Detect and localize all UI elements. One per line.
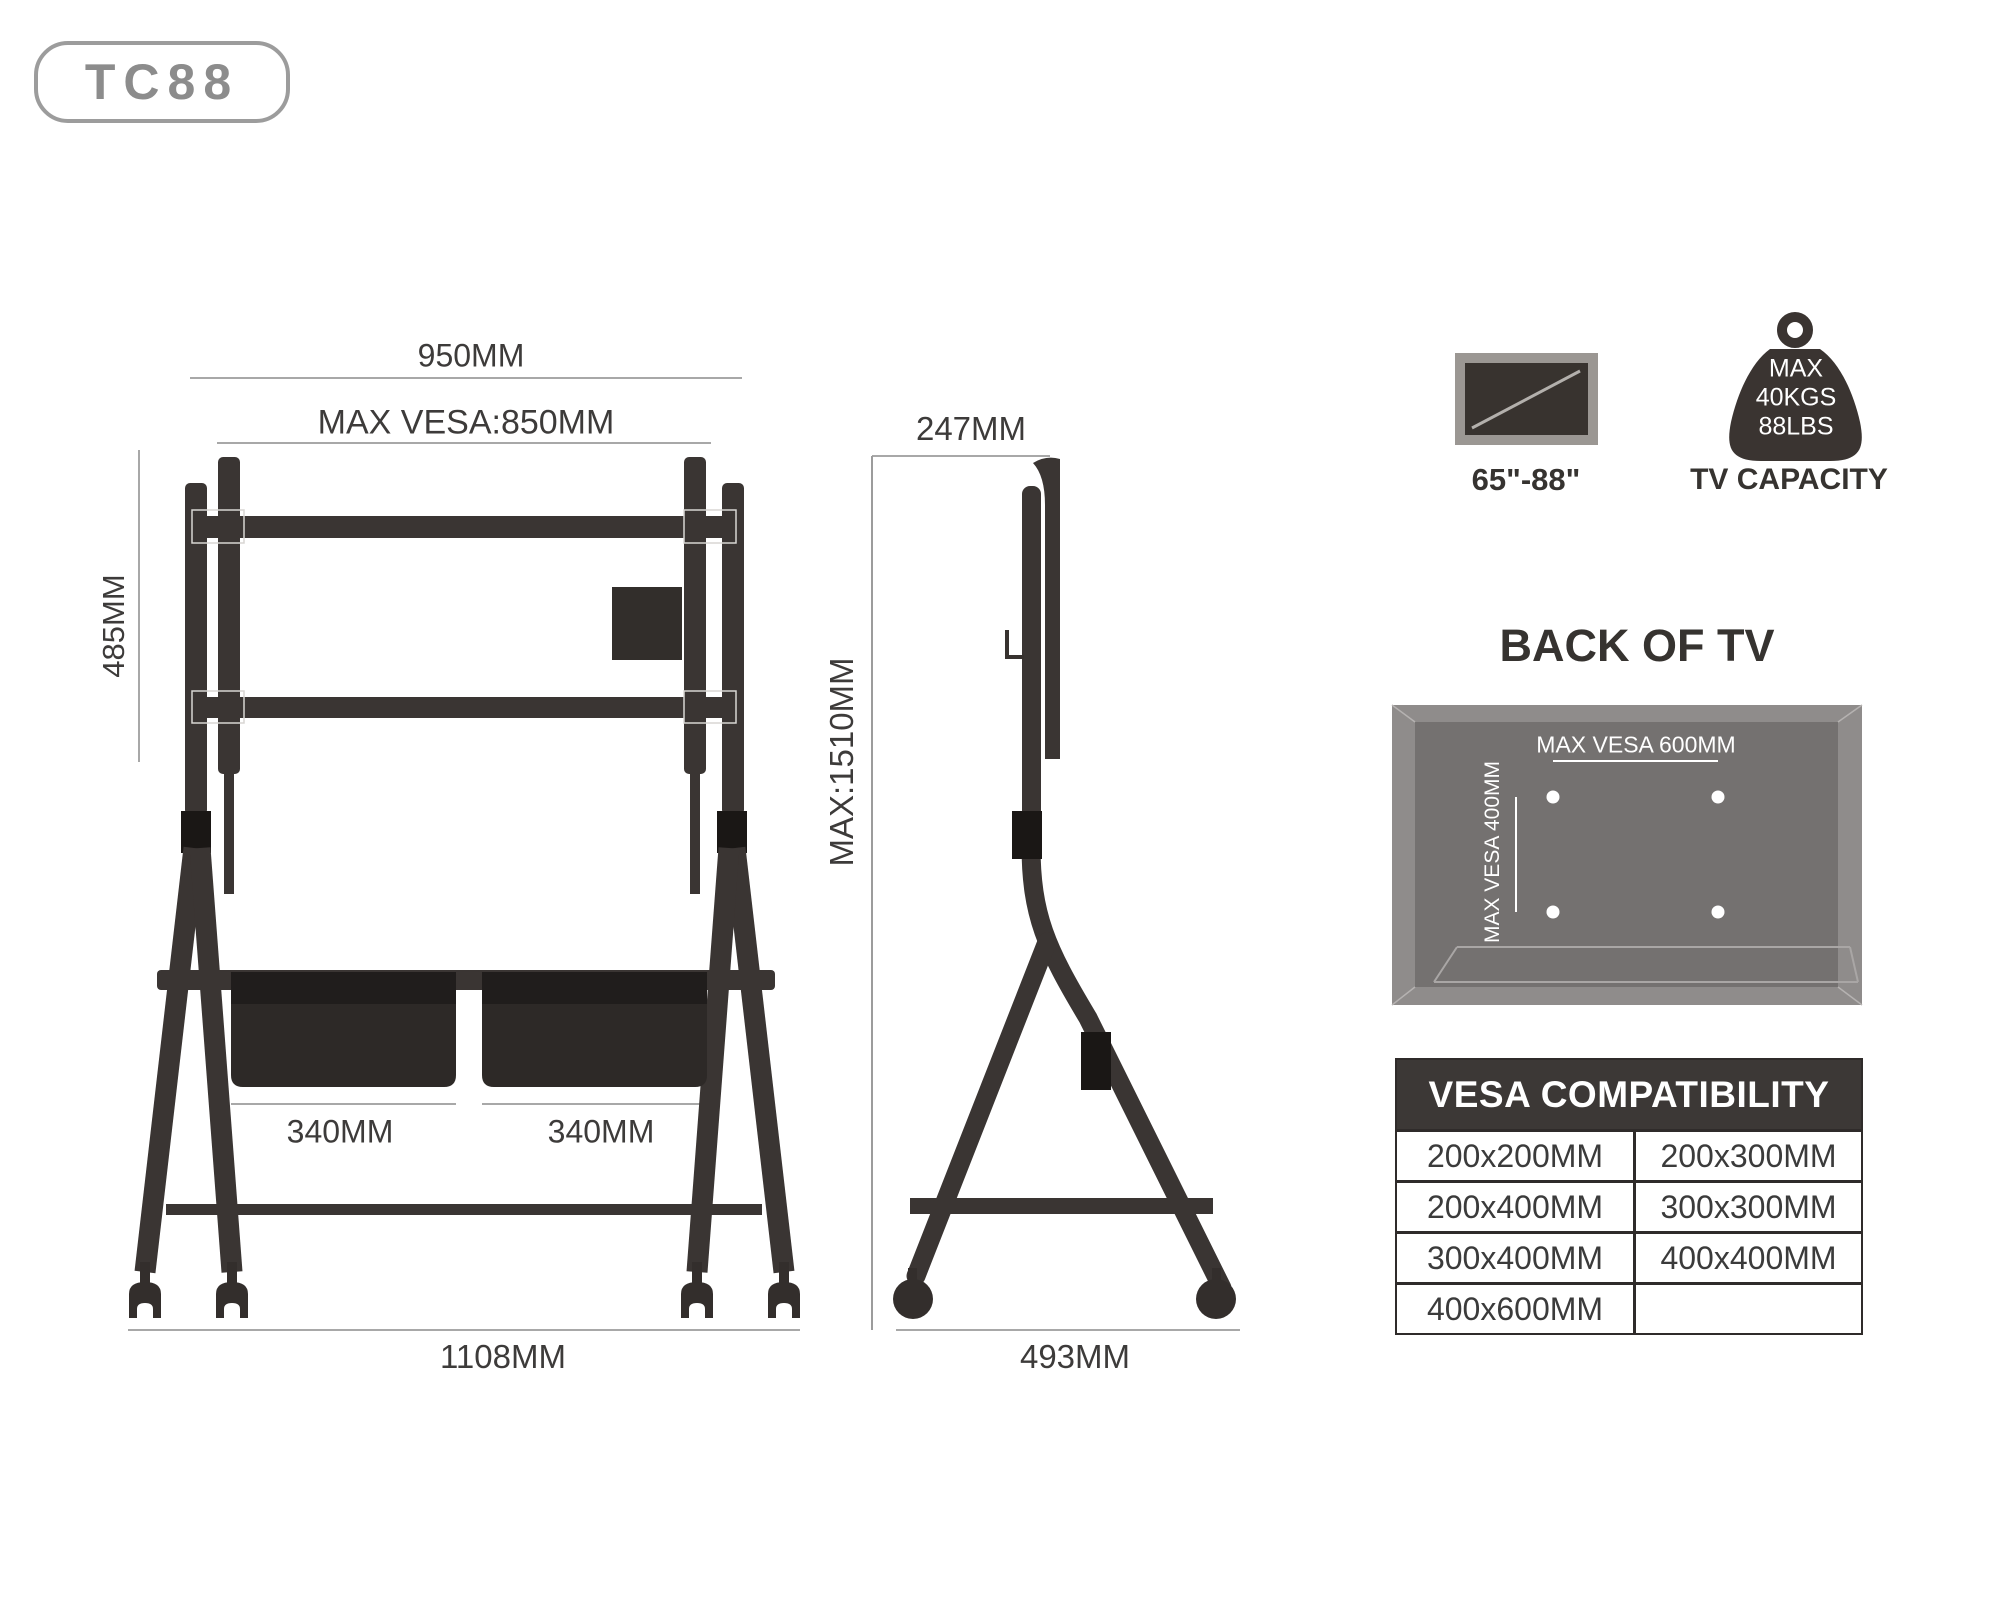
base-bar: [166, 1204, 762, 1215]
pole-side: [1022, 486, 1041, 860]
side-caster-front: [893, 1279, 933, 1319]
vesa-compatibility-table: VESA COMPATIBILITY 200x200MM 200x300MM 2…: [1395, 1058, 1863, 1335]
vesa-cell-empty: [1636, 1285, 1861, 1333]
dim-247-label: 247MM: [916, 410, 1026, 448]
vesa-hole-bl: [1547, 906, 1560, 919]
caster-wheel: [768, 1262, 800, 1318]
model-badge: TC88: [34, 41, 290, 123]
dim-340-right-label: 340MM: [548, 1114, 655, 1151]
dim-850-label: MAX VESA:850MM: [318, 404, 615, 443]
leg-box-side: [1081, 1032, 1111, 1090]
side-caster-stem-front: [908, 1268, 917, 1284]
capacity-values: MAX 40KGS 88LBS: [1756, 355, 1837, 442]
max-vesa-400-label: MAX VESA 400MM: [1481, 761, 1505, 943]
weight-ring: [1782, 317, 1808, 343]
capacity-kgs: 40KGS: [1756, 384, 1837, 413]
vesa-cell: 200x400MM: [1397, 1183, 1633, 1231]
vesa-hole-tl: [1547, 791, 1560, 804]
tv-size-range-label: 65"-88": [1472, 462, 1581, 498]
side-caster-rear: [1196, 1279, 1236, 1319]
vesa-cell: 300x400MM: [1397, 1234, 1633, 1282]
vesa-hole-br: [1712, 906, 1725, 919]
diagram-artwork: [0, 0, 2000, 1600]
vesa-hole-tr: [1712, 791, 1725, 804]
media-box: [612, 587, 682, 660]
upper-crossbar: [190, 516, 738, 538]
rear-leg-side: [1031, 845, 1222, 1288]
caster-wheel: [216, 1262, 248, 1318]
dim-950-label: 950MM: [418, 338, 525, 375]
vesa-cell: 400x600MM: [1397, 1285, 1633, 1333]
model-name: TC88: [85, 53, 239, 111]
left-vesa-strip: [218, 457, 240, 774]
tv-size-icon: [1455, 353, 1598, 445]
dim-340-left-label: 340MM: [287, 1114, 394, 1151]
basket-right-band: [482, 972, 707, 1004]
basket-left-band: [231, 972, 456, 1004]
vesa-cell: 200x300MM: [1636, 1132, 1861, 1180]
vesa-table-body: 200x200MM 200x300MM 200x400MM 300x300MM …: [1397, 1129, 1861, 1333]
left-clamp: [181, 811, 211, 853]
hook-bracket-side: [1007, 630, 1024, 657]
dim-485-label: 485MM: [96, 574, 132, 677]
tv-capacity-label: TV CAPACITY: [1690, 463, 1888, 497]
right-clamp: [717, 811, 747, 853]
capacity-lbs: 88LBS: [1756, 413, 1837, 442]
lower-crossbar: [190, 697, 738, 718]
dim-1108-label: 1108MM: [440, 1338, 566, 1376]
side-view-drawing: [872, 456, 1240, 1330]
right-vesa-rod: [690, 772, 700, 894]
vesa-cell: 300x300MM: [1636, 1183, 1861, 1231]
dim-493-label: 493MM: [1020, 1338, 1130, 1376]
basket-right-body: [482, 1000, 707, 1087]
left-vesa-rod: [224, 772, 234, 894]
front-leg-side: [916, 942, 1047, 1276]
right-vesa-strip: [684, 457, 706, 774]
capacity-max: MAX: [1756, 355, 1837, 384]
vesa-cell: 200x200MM: [1397, 1132, 1633, 1180]
caster-wheel: [129, 1262, 161, 1318]
vesa-table-title: VESA COMPATIBILITY: [1397, 1060, 1861, 1129]
caster-wheel: [681, 1262, 713, 1318]
back-of-tv-title: BACK OF TV: [1500, 620, 1775, 672]
max-vesa-600-label: MAX VESA 600MM: [1536, 732, 1735, 759]
side-caster-stem-rear: [1212, 1268, 1221, 1284]
dim-1510-label: MAX:1510MM: [823, 657, 861, 866]
vesa-cell: 400x400MM: [1636, 1234, 1861, 1282]
foot-bar-side: [910, 1198, 1213, 1214]
front-casters: [129, 1262, 800, 1318]
basket-left-body: [231, 1000, 456, 1087]
spec-sheet: TC88 950MM MAX VESA:850MM 485MM 340MM 34…: [0, 0, 2000, 1600]
pole-clamp-side: [1012, 811, 1042, 859]
front-view-drawing: [128, 378, 800, 1330]
